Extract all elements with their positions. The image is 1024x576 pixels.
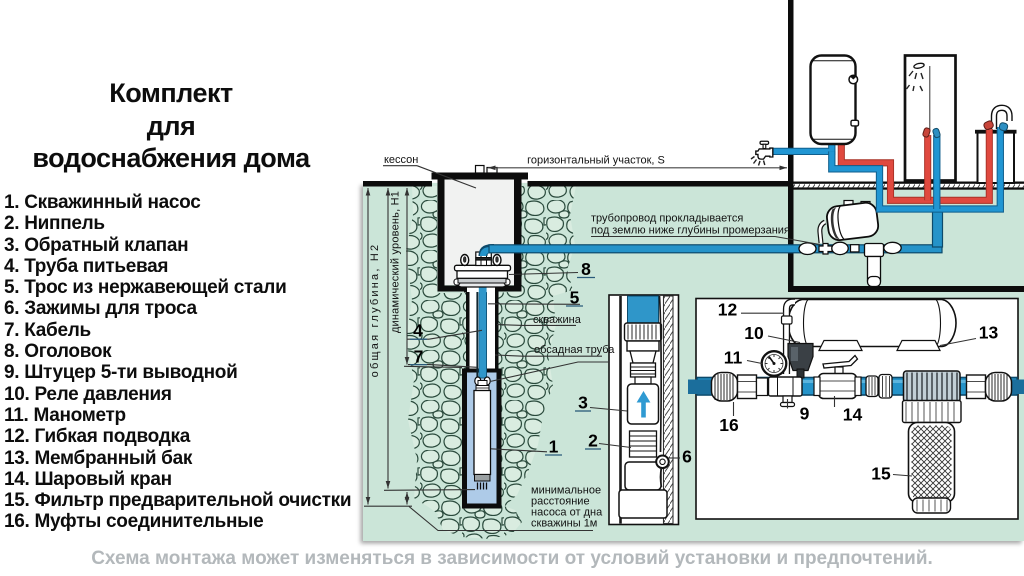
svg-text:8: 8: [581, 259, 591, 279]
svg-text:12: 12: [718, 300, 738, 320]
svg-text:скважины 1м: скважины 1м: [531, 518, 597, 530]
svg-text:4: 4: [413, 321, 423, 341]
svg-text:2: 2: [588, 431, 598, 451]
svg-text:5: 5: [570, 288, 580, 308]
svg-text:15: 15: [871, 464, 891, 484]
svg-text:9: 9: [800, 404, 810, 424]
svg-text:7: 7: [414, 347, 424, 367]
svg-text:6: 6: [682, 447, 692, 467]
svg-text:кессон: кессон: [384, 154, 418, 166]
svg-text:трубопровод прокладывается: трубопровод прокладывается: [591, 213, 743, 225]
svg-text:10: 10: [744, 323, 764, 343]
svg-text:3: 3: [578, 393, 588, 413]
svg-text:14: 14: [843, 405, 863, 425]
svg-text:11: 11: [724, 348, 743, 368]
svg-text:обсадная труба: обсадная труба: [534, 344, 615, 356]
svg-text:общая глубина, Н2: общая глубина, Н2: [369, 243, 381, 378]
svg-text:динамический уровень, Н1: динамический уровень, Н1: [390, 191, 402, 333]
svg-text:16: 16: [719, 415, 739, 435]
svg-text:скважина: скважина: [533, 314, 582, 326]
svg-text:1: 1: [549, 437, 559, 457]
svg-text:13: 13: [979, 323, 999, 343]
svg-text:под землю ниже глубины промерз: под землю ниже глубины промерзания: [591, 225, 790, 237]
svg-text:горизонтальный участок, S: горизонтальный участок, S: [527, 155, 665, 167]
